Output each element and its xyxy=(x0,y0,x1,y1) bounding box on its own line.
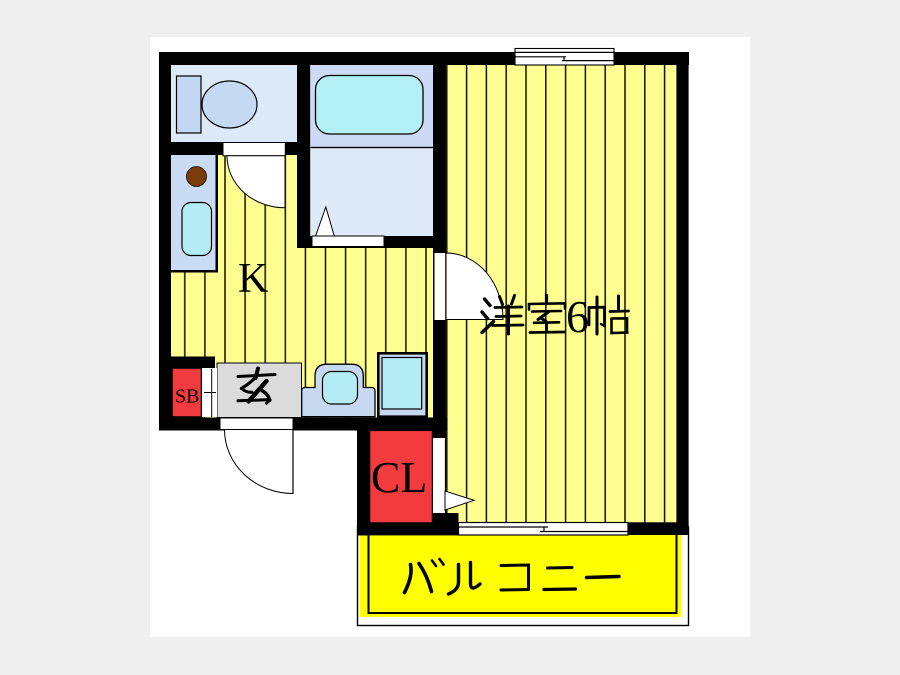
svg-text:SB: SB xyxy=(175,386,199,408)
svg-text:CL: CL xyxy=(371,453,427,502)
svg-text:6: 6 xyxy=(566,291,589,342)
svg-text:K: K xyxy=(238,256,268,302)
